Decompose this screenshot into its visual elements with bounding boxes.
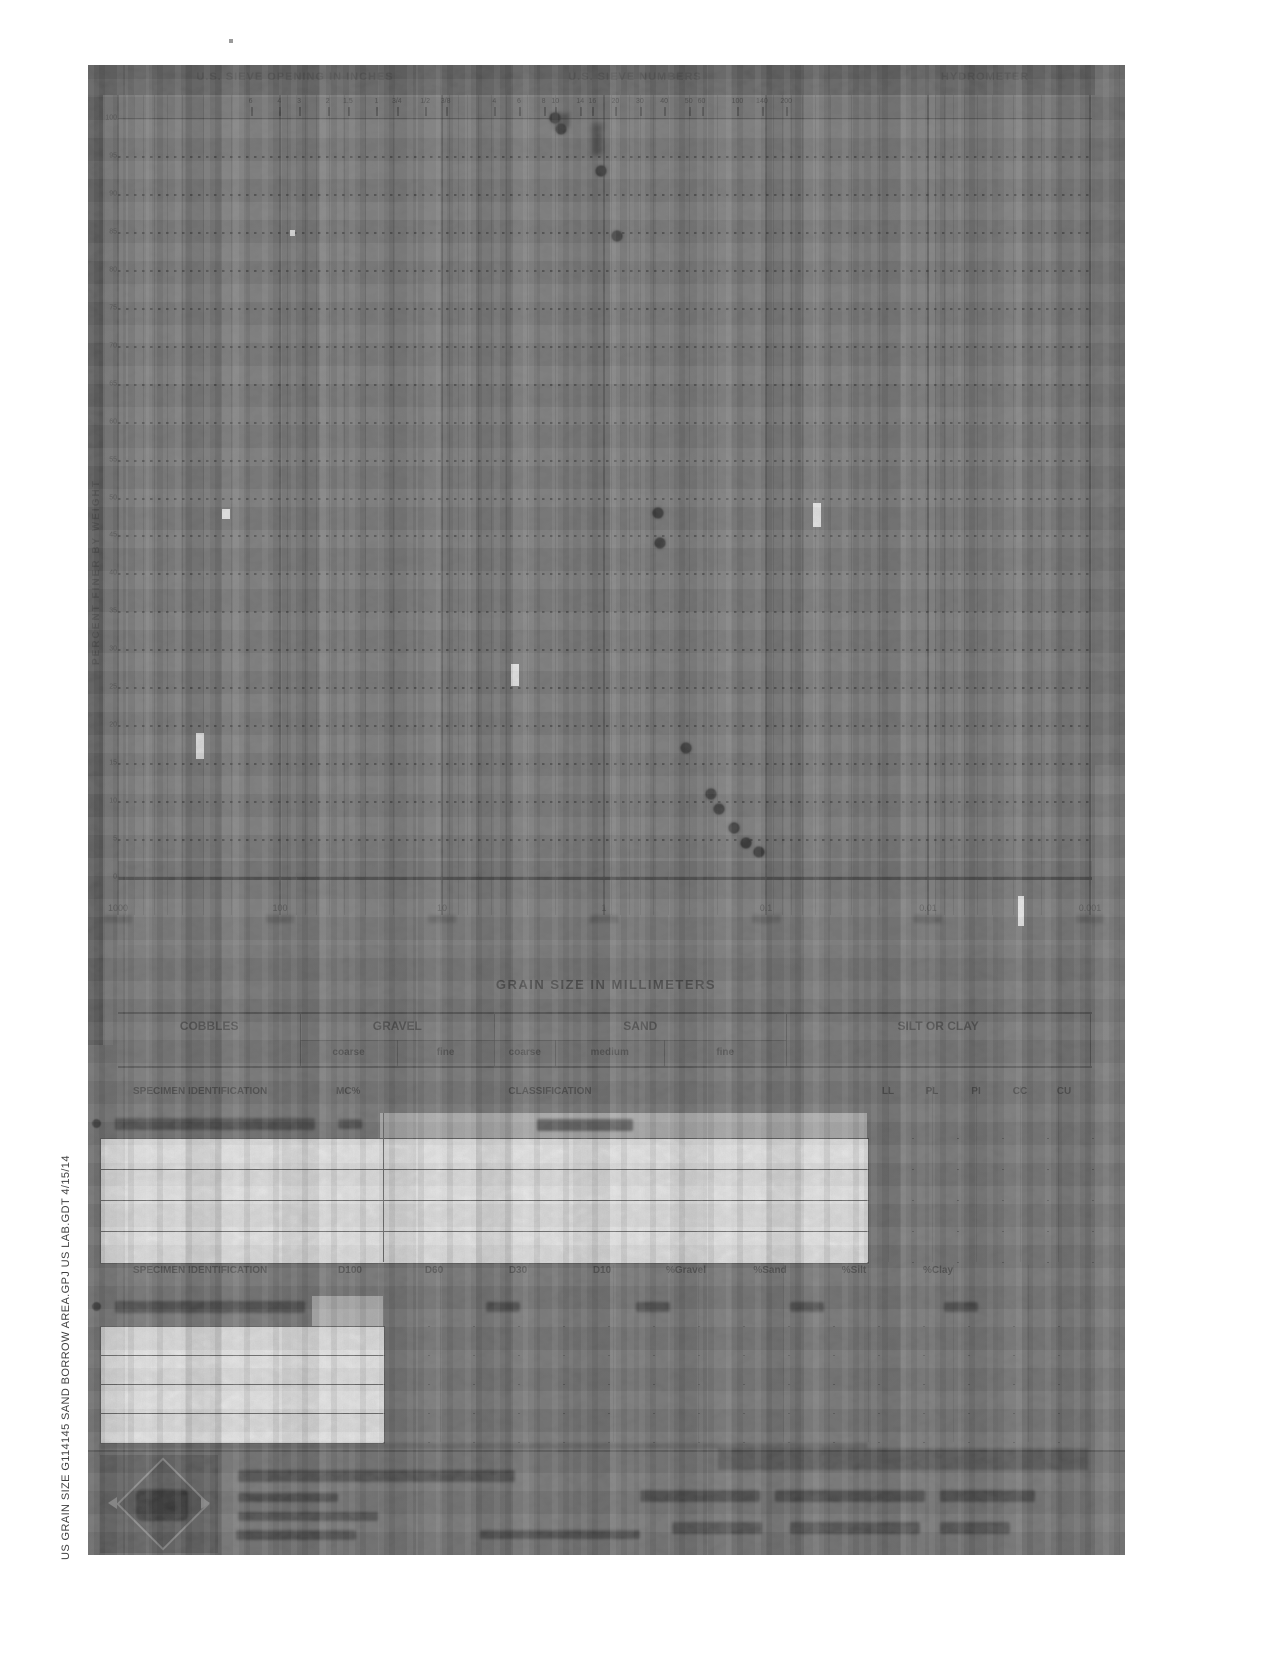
grid-vline-minor [467, 95, 468, 915]
grid-vline-minor [134, 95, 135, 915]
sieve-tick-mark [592, 107, 594, 116]
sieve-size-tick: 10 [551, 98, 559, 105]
t1-right-col-line [1058, 1086, 1059, 1262]
scan-white-speck [222, 509, 230, 519]
grid-vline-minor [478, 95, 479, 915]
grid-hline-dotted [118, 687, 1092, 689]
footer-left-text-smudge [238, 1512, 378, 1521]
scan-white-speck [196, 733, 204, 759]
sieve-size-tick: 4 [492, 98, 496, 105]
x-tick-label: 1 [601, 903, 606, 913]
grid-hline-dotted [118, 498, 1092, 500]
grid-hline-dotted [118, 194, 1092, 196]
grid-hline-dotted [118, 725, 1092, 727]
classification-group-divider [300, 1012, 301, 1066]
classification-sub-label: coarse [332, 1047, 364, 1058]
x-tick-label: 10 [437, 903, 447, 913]
t1-right-col-line [1020, 1086, 1021, 1262]
x-tick-smudge [752, 915, 780, 923]
scan-white-speck [511, 664, 519, 686]
sidebar-filename-text: US GRAIN SIZE G114145 SAND BORROW AREA.G… [60, 1055, 72, 1560]
grid-vline-minor [977, 95, 978, 915]
generated-detail-layer: 1009590858075706560555045403530252015105… [88, 65, 1125, 1555]
t2-col-line [868, 1265, 869, 1442]
y-tick-label: 5 [103, 836, 117, 843]
classification-group-divider [1090, 1012, 1091, 1066]
sieve-size-tick: 1 [374, 98, 378, 105]
grid-vline-minor [935, 95, 936, 915]
t1-header-classification: CLASSIFICATION [508, 1086, 591, 1097]
grid-hline-dotted [118, 839, 1092, 841]
chart-bottom-border [118, 877, 1092, 880]
data-smear [592, 123, 602, 155]
t2-header-D100: D100 [338, 1265, 362, 1276]
t2-row1-value-smudge [636, 1302, 670, 1312]
footer-left-text-smudge [236, 1530, 356, 1540]
sieve-size-tick: 20 [612, 98, 620, 105]
classification-group-label: SILT OR CLAY [897, 1019, 978, 1033]
t2-col-line [1028, 1265, 1029, 1442]
t2-header-D10: D10 [593, 1265, 611, 1276]
classification-sub-divider [397, 1040, 398, 1066]
y-tick-label: 40 [103, 570, 117, 577]
y-tick-label: 80 [103, 266, 117, 273]
grid-vline-minor [964, 95, 965, 915]
t2-row1-value-smudge [944, 1302, 978, 1312]
t2-right-dotline [383, 1413, 1095, 1414]
classification-group-label: GRAVEL [373, 1019, 422, 1033]
grid-vline-minor [287, 95, 288, 915]
sieve-size-tick: 6 [249, 98, 253, 105]
classification-mid-border [300, 1040, 786, 1041]
sieve-tick-mark [615, 107, 617, 116]
grid-vline-minor [944, 95, 945, 915]
grid-hline-dotted [118, 346, 1092, 348]
t2-row1-value-smudge [790, 1302, 824, 1312]
grid-vline-minor [203, 95, 204, 915]
t1-row-line [100, 1231, 867, 1232]
grid-vline-minor [668, 95, 669, 915]
y-tick-label: 20 [103, 722, 117, 729]
classification-bar-bottom-border [118, 1066, 1092, 1068]
grid-vline-minor [953, 95, 954, 915]
y-tick-label: 15 [103, 760, 117, 767]
sieve-size-tick: 4 [277, 98, 281, 105]
t2-header-D30: D30 [509, 1265, 527, 1276]
grid-vline-minor [365, 95, 366, 915]
t1-header-specimen: SPECIMEN IDENTIFICATION [133, 1086, 267, 1097]
y-tick-label: 100 [103, 115, 117, 122]
t2-col-line [698, 1265, 699, 1442]
t1-right-dotline [867, 1169, 1095, 1170]
footer-left-text-smudge [238, 1493, 338, 1502]
t1-row1-class-smudge [537, 1119, 633, 1131]
t1-row1-mc-smudge [338, 1119, 362, 1129]
t1-row-bullet [92, 1119, 101, 1128]
t2-row-line [100, 1413, 383, 1414]
x-tick-smudge [1076, 915, 1104, 923]
grid-vline-minor [167, 95, 168, 915]
y-tick-label: 65 [103, 380, 117, 387]
y-tick-label: 70 [103, 342, 117, 349]
grid-vline-minor [506, 95, 507, 915]
t1-right-dotline [867, 1138, 1095, 1139]
company-logo-box [100, 1455, 218, 1553]
grid-vline-minor [629, 95, 630, 915]
grid-hline-dotted [118, 460, 1092, 462]
t1-col-divider [383, 1113, 384, 1262]
grid-vline-minor [992, 95, 993, 915]
sieve-tick-mark [299, 107, 301, 116]
sieve-size-tick: 30 [636, 98, 644, 105]
grid-hline-dotted [118, 573, 1092, 575]
page-speck [229, 39, 233, 43]
t2-row-line [100, 1384, 383, 1385]
grid-hline-dotted [118, 384, 1092, 386]
grid-hline-dotted [118, 422, 1092, 424]
y-tick-label: 25 [103, 684, 117, 691]
classification-sub-label: medium [591, 1047, 629, 1058]
t2-col-line [783, 1265, 784, 1442]
t2-row1-light-cell [312, 1296, 383, 1326]
x-tick-smudge [590, 915, 618, 923]
sieve-size-tick: 6 [517, 98, 521, 105]
grid-vline-minor [782, 95, 783, 915]
t2-header-%Silt: %Silt [842, 1265, 866, 1276]
y-tick-label: 30 [103, 646, 117, 653]
data-point-marker [612, 230, 623, 241]
data-point-marker [652, 507, 663, 518]
sieve-tick-mark [446, 107, 448, 116]
classification-group-label: COBBLES [180, 1019, 239, 1033]
grid-vline-minor [791, 95, 792, 915]
sieve-tick-mark [689, 107, 691, 116]
grid-vline-minor [449, 95, 450, 915]
t1-row-line [100, 1200, 867, 1201]
chart-bottom-shade [118, 861, 1092, 877]
sieve-tick-mark [786, 107, 788, 116]
t2-right-dotline [383, 1384, 1095, 1385]
sieve-size-tick: 40 [660, 98, 668, 105]
grid-vline-minor [329, 95, 330, 915]
grid-hline-dotted [118, 801, 1092, 803]
grid-vline-minor [611, 95, 612, 915]
t1-right-col-line [976, 1086, 977, 1262]
footer-right-text-smudge [640, 1490, 760, 1502]
grid-vline-minor [689, 95, 690, 915]
y-tick-label: 45 [103, 532, 117, 539]
castle-logo-glyph-icon [136, 1489, 188, 1521]
sieve-size-tick: 2 [326, 98, 330, 105]
sieve-size-tick: 3/8 [441, 98, 451, 105]
grid-hline-dotted [118, 308, 1092, 310]
t2-right-dotline [383, 1355, 1095, 1356]
grid-hline-dotted [118, 270, 1092, 272]
y-tick-label: 50 [103, 494, 117, 501]
sieve-size-tick: 3/4 [392, 98, 402, 105]
x-tick-smudge [266, 915, 294, 923]
sieve-size-tick: 60 [698, 98, 706, 105]
x-tick-smudge [104, 915, 132, 923]
t1-header-mc: MC% [336, 1086, 360, 1097]
sieve-tick-mark [580, 107, 582, 116]
grid-vline-minor [851, 95, 852, 915]
t1-row-line [100, 1169, 867, 1170]
report-sheet: U.S. SIEVE OPENING IN INCHES U.S. SIEVE … [88, 65, 1125, 1555]
scanned-page: US GRAIN SIZE G114145 SAND BORROW AREA.G… [0, 0, 1280, 1664]
grid-vline-minor [640, 95, 641, 915]
classification-sub-divider [555, 1040, 556, 1066]
classification-sub-label: fine [437, 1047, 455, 1058]
t2-row-bullet [92, 1302, 101, 1311]
classification-sub-divider [664, 1040, 665, 1066]
grid-vline-minor [296, 95, 297, 915]
t2-row-line [100, 1355, 383, 1356]
t2-row1-specimen-smudge [115, 1301, 305, 1313]
sieve-tick-mark [544, 107, 546, 116]
sieve-tick-mark [397, 107, 399, 116]
classification-sub-label: coarse [509, 1047, 541, 1058]
grid-vline-minor [802, 95, 803, 915]
grid-vline-minor [231, 95, 232, 915]
sieve-tick-mark [640, 107, 642, 116]
sieve-tick-mark [519, 107, 521, 116]
data-point-marker [754, 846, 765, 857]
t1-white-body [100, 1138, 869, 1264]
t2-white-body [100, 1326, 385, 1444]
y-tick-label: 55 [103, 456, 117, 463]
sieve-size-tick: 50 [685, 98, 693, 105]
x-tick-smudge [914, 915, 942, 923]
x-tick-label: 100 [272, 903, 287, 913]
grid-vline-minor [527, 95, 528, 915]
t2-col-line [953, 1265, 954, 1442]
grid-hline-dotted [118, 232, 1092, 234]
t1-right-col-line [888, 1086, 889, 1262]
footer-right-text-smudge [775, 1490, 925, 1502]
t2-header-%Sand: %Sand [753, 1265, 786, 1276]
sieve-size-tick: 1.5 [343, 98, 353, 105]
data-point-marker [714, 803, 725, 814]
t2-col-line [440, 1265, 441, 1442]
footer-right-text-smudge [790, 1522, 920, 1534]
sieve-tick-mark [279, 107, 281, 116]
grid-hline-dotted [118, 611, 1092, 613]
sieve-size-tick: 14 [576, 98, 584, 105]
grid-vline-major [765, 95, 767, 915]
sieve-tick-mark [425, 107, 427, 116]
t2-col-line [613, 1265, 614, 1442]
grid-vline-minor [620, 95, 621, 915]
y-tick-label: 75 [103, 304, 117, 311]
t1-right-dotline [867, 1262, 1095, 1263]
grid-vline-minor [773, 95, 774, 915]
grid-vline-minor [653, 95, 654, 915]
sieve-size-tick: 100 [732, 98, 744, 105]
grid-vline-minor [154, 95, 155, 915]
scan-white-speck [813, 503, 821, 527]
grid-vline-major [117, 95, 119, 915]
data-point-marker [741, 837, 752, 848]
scan-white-speck [290, 230, 295, 236]
grid-vline-minor [555, 95, 556, 915]
sieve-size-tick: 1/2 [420, 98, 430, 105]
grid-vline-minor [491, 95, 492, 915]
y-tick-label: 90 [103, 190, 117, 197]
t1-right-dotline [867, 1200, 1095, 1201]
t2-row1-value-smudge [486, 1302, 520, 1312]
data-point-marker [595, 166, 606, 177]
footer-project-band [718, 1448, 1088, 1470]
footer-right-text-smudge [940, 1490, 1035, 1502]
scan-white-speck [1018, 896, 1024, 926]
t2-header-specimen: SPECIMEN IDENTIFICATION [133, 1265, 267, 1276]
t2-header-%Clay: %Clay [923, 1265, 953, 1276]
grid-vline-major [279, 95, 281, 915]
grid-vline-minor [316, 95, 317, 915]
sieve-size-tick: 200 [780, 98, 792, 105]
grid-vline-minor [344, 95, 345, 915]
y-tick-label: 10 [103, 798, 117, 805]
grid-vline-minor [393, 95, 394, 915]
classification-sub-label: fine [716, 1047, 734, 1058]
sieve-tick-mark [251, 107, 253, 116]
data-point-marker [728, 822, 739, 833]
logo-left-arrow-icon [108, 1497, 117, 1509]
y-tick-label: 95 [103, 152, 117, 159]
footer-left-text-smudge [238, 1470, 515, 1482]
classification-group-label: SAND [623, 1019, 657, 1033]
x-tick-label: 1000 [108, 903, 128, 913]
grid-vline-major [927, 95, 929, 915]
classification-sub-divider [786, 1040, 787, 1066]
footer-right-text-smudge [672, 1522, 762, 1534]
grid-hline-dotted [118, 535, 1092, 537]
grid-vline-minor [143, 95, 144, 915]
sieve-size-tick: 3 [297, 98, 301, 105]
sieve-tick-mark [737, 107, 739, 116]
t1-row1-specimen-smudge [115, 1118, 315, 1130]
sieve-tick-mark [762, 107, 764, 116]
data-point-marker [705, 788, 716, 799]
y-tick-label: 35 [103, 608, 117, 615]
sieve-tick-mark [376, 107, 378, 116]
grid-vline-minor [458, 95, 459, 915]
sieve-tick-mark [494, 107, 496, 116]
x-tick-label: 0.001 [1079, 903, 1102, 913]
data-point-marker [681, 742, 692, 753]
footer-left-text-smudge [480, 1530, 640, 1539]
grid-vline-minor [182, 95, 183, 915]
grid-vline-minor [305, 95, 306, 915]
grid-vline-minor [717, 95, 718, 915]
t1-right-dotline [867, 1231, 1095, 1232]
grid-vline-major [1089, 95, 1091, 915]
t1-right-col-line [932, 1086, 933, 1262]
grid-vline-minor [1013, 95, 1014, 915]
grid-vline-minor [125, 95, 126, 915]
data-point-marker [655, 538, 666, 549]
grid-vline-major [603, 95, 605, 915]
t2-col-line [528, 1265, 529, 1442]
sieve-size-tick: 8 [542, 98, 546, 105]
classification-bar-top-border [118, 1012, 1092, 1014]
classification-sub-divider [494, 1040, 495, 1066]
grid-vline-major [441, 95, 443, 915]
sieve-tick-mark [328, 107, 330, 116]
x-tick-label: 0.01 [919, 903, 937, 913]
y-tick-label: 60 [103, 418, 117, 425]
data-smear [554, 113, 570, 127]
x-tick-smudge [428, 915, 456, 923]
grid-hline-dotted [118, 156, 1092, 158]
sieve-size-tick: 16 [588, 98, 596, 105]
footer-right-text-smudge [940, 1522, 1010, 1534]
x-tick-label: 0.1 [760, 903, 773, 913]
logo-right-arrow-icon [201, 1497, 210, 1509]
sieve-tick-mark [348, 107, 350, 116]
t2-right-dotline [383, 1326, 1095, 1327]
sieve-tick-mark [702, 107, 704, 116]
grid-hline-dotted [118, 763, 1092, 765]
y-tick-label: 85 [103, 228, 117, 235]
grid-vline-minor [830, 95, 831, 915]
y-tick-label: 0 [103, 874, 117, 881]
grid-vline-minor [1041, 95, 1042, 915]
sieve-tick-mark [664, 107, 666, 116]
grid-vline-minor [879, 95, 880, 915]
chart-top-border [118, 118, 1092, 119]
sieve-size-tick: 140 [756, 98, 768, 105]
grid-hline-dotted [118, 649, 1092, 651]
t2-header-%Gravel: %Gravel [666, 1265, 706, 1276]
